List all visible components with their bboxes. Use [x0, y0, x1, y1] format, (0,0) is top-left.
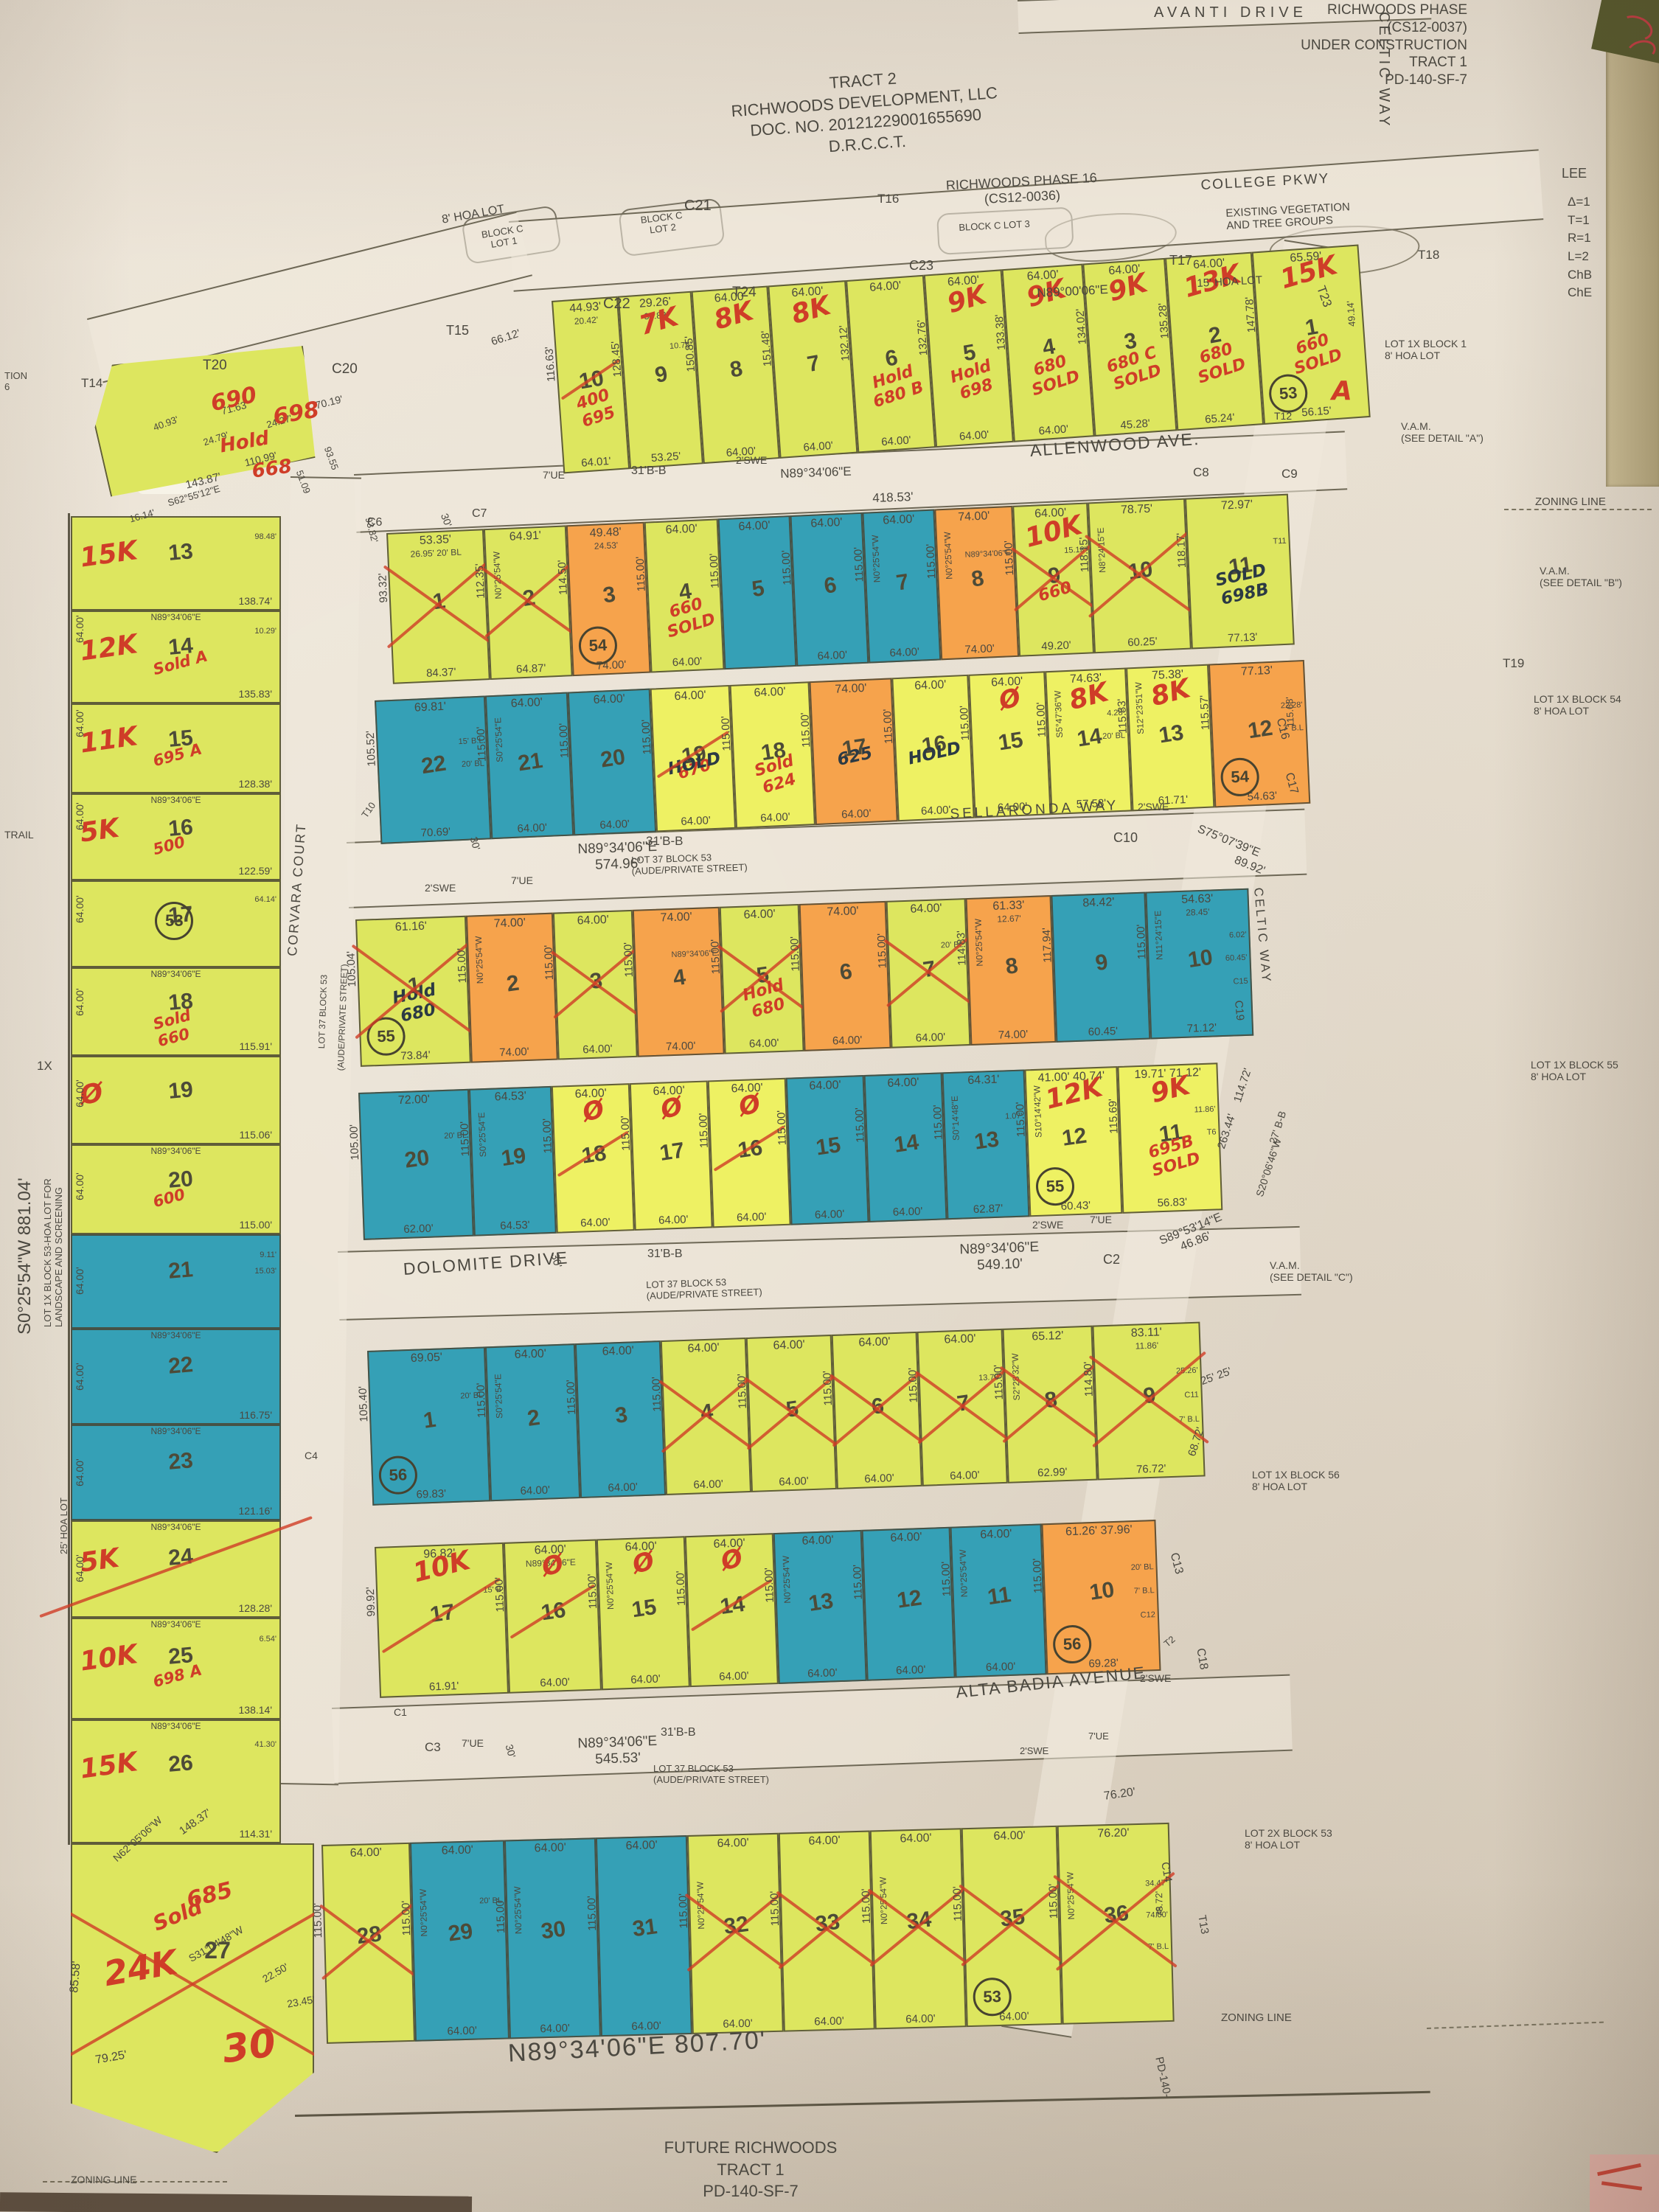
lot: 64.00'10K9115.00'49.20'66015.13'	[1012, 502, 1094, 656]
lot-frontage-dim: 64.00'	[872, 1831, 960, 1847]
lot: 64.00'7115.00'64.00'13.70'	[917, 1329, 1008, 1486]
lot-rear-dim: 64.00'	[797, 647, 867, 663]
plat-label: ZONING LINE	[71, 2174, 136, 2185]
plat-label: T19	[1503, 656, 1524, 671]
plat-label: Δ=1 T=1 R=1 L=2 ChB ChE	[1568, 193, 1592, 302]
lot-bearing: S0°25'54"E	[477, 1112, 489, 1157]
lot-rear-dim: 64.00'	[868, 1662, 954, 1677]
lot: 15K13138.74'98.48'	[71, 516, 281, 611]
lot: 64.00'Ø17115.00'64.00'	[630, 1080, 713, 1231]
lot-frontage-dim: 64.00'	[689, 1836, 777, 1852]
lot: N89°34'06"E22116.75'	[71, 1329, 281, 1425]
lot-frontage-dim: 64.00'	[952, 1526, 1041, 1543]
lot-depth-dim: 115.00'	[1014, 1102, 1028, 1137]
lot-rear-dim: 64.00'	[636, 1212, 712, 1228]
lot-inner-dim: C12	[1140, 1610, 1155, 1620]
lot-frontage-dim: 64.00'	[775, 1533, 861, 1549]
lot-rear-dim: 60.25'	[1095, 633, 1190, 650]
lot-rear-dim: 64.00'	[602, 1672, 689, 1687]
lot-bearing: N89°34'06"E	[72, 1620, 279, 1630]
lot: 64.00'8K7151.48'64.00'	[768, 280, 858, 459]
plat-label: C22	[603, 296, 630, 313]
lot: N89°34'06"E5K16500122.59'	[71, 793, 281, 880]
lot-rear-dim: 45.28'	[1095, 415, 1175, 434]
lot-rear-dim: 84.37'	[394, 664, 489, 681]
lot-rear-dim: 64.00'	[574, 816, 655, 832]
lot: 78.75'10118.15'N8°24'15"E60.25'	[1088, 498, 1192, 654]
lot-depth-dim: 138.74'	[239, 595, 273, 607]
lot-depth-dim: 115.00'	[619, 1116, 633, 1151]
lot-depth-dim: 115.00'	[881, 709, 895, 744]
lot-frontage-dim: 69.05'	[369, 1349, 484, 1367]
plat-label: N89°34'06"E	[780, 465, 852, 481]
west-edge-dim: 64.00'	[74, 988, 86, 1016]
lot: 64.00'3115.00'64.00'	[575, 1340, 666, 1498]
lot: 64.00'6115.00'64.00'	[790, 512, 869, 667]
lot-rear-dim: 64.00'	[752, 1474, 835, 1489]
pink-sticky-edge	[1590, 2154, 1659, 2212]
lot-depth-dim: 116.63'	[543, 346, 558, 382]
lot-frontage-dim: 64.31'	[944, 1073, 1024, 1089]
plat-label: T17	[1169, 253, 1192, 268]
lot-depth-dim: 115.00'	[1002, 540, 1016, 575]
lot-depth-dim: 150.85'	[683, 335, 698, 372]
lot-depth-dim: 115.00'	[585, 1896, 599, 1931]
lot-rear-dim: 64.00'	[691, 1669, 777, 1684]
lot-rear-dim: 64.00'	[838, 1471, 921, 1486]
lot-depth-dim: 115.00'	[455, 947, 469, 983]
lot-depth-dim: 115.00'	[565, 1380, 579, 1415]
plat-label: C9	[1281, 467, 1298, 481]
lot: 64.00'Ø15115.00'64.00'	[968, 671, 1051, 818]
plat-label: T20	[203, 358, 227, 374]
lot-bearing: N89°34'06"E	[72, 796, 279, 806]
lot-depth-dim: 115.00'	[634, 556, 648, 591]
lot-depth-dim: 115.00'	[853, 1107, 867, 1143]
plat-label: T16	[877, 192, 899, 206]
lot-rear-dim: 64.00'	[870, 1204, 946, 1220]
lot-frontage-dim: 64.00'	[894, 678, 968, 695]
lot-depth-dim: 115.00'	[542, 945, 556, 980]
plat-label: C19	[1232, 1000, 1247, 1021]
lot: 11K15695 A128.38'	[71, 703, 281, 793]
lot: 64.00'4115.00'64.00'	[661, 1338, 751, 1495]
lot-bearing: S5°47'36"W	[1053, 690, 1065, 738]
lot: 64.00'12115.00'64.00'	[862, 1527, 956, 1681]
handwritten-red-note: A	[1332, 376, 1352, 406]
lot-number: 22	[167, 1352, 194, 1380]
lot: 64.00'30115.00'N0°25'54"W64.00'	[504, 1837, 601, 2039]
lot-rear-dim: 64.00'	[816, 806, 897, 822]
lot-frontage-dim: 54.63'	[1147, 891, 1248, 908]
lot-bearing: N0°25'54"W	[513, 1886, 524, 1934]
lot-depth-dim: 114.31'	[240, 1828, 272, 1840]
lot-rear-dim: 64.00'	[492, 820, 572, 836]
lot: 74.00'17115.00'64.00'625	[809, 678, 897, 825]
lot-frontage-dim: 61.26' 37.96'	[1043, 1523, 1155, 1540]
lot: 175364.14'	[71, 880, 281, 967]
lot-depth-dim: 118.17'	[1175, 532, 1189, 568]
lot: 64.00'14115.00'64.00'	[864, 1072, 947, 1222]
lot-depth-dim: 133.38'	[993, 313, 1009, 350]
lot: N89°34'06"E15K26114.31'41.30'	[71, 1719, 281, 1843]
lot-frontage-dim: 74.00'	[634, 910, 719, 926]
lot: 74.00'6115.00'64.00'	[799, 901, 891, 1051]
lot-inner-dim: 22.28'	[1281, 701, 1303, 712]
lot: 64.91'2112.35'N0°25'54"W64.87'	[484, 525, 573, 680]
lot-bearing: N0°25'54"W	[605, 1562, 616, 1610]
lot-frontage-dim: 64.00'	[833, 1335, 917, 1351]
table-edge	[0, 2192, 472, 2212]
block-number-circle: 53	[155, 902, 193, 940]
plat-label: N89°34'06"E 549.10'	[929, 1238, 1070, 1275]
lot-frontage-dim: 61.16'	[357, 919, 465, 936]
lot-frontage-dim: 64.00'	[662, 1340, 745, 1357]
lot-depth-dim: 115.00'	[400, 1901, 413, 1936]
lot: 64.00'29115.00'N0°25'54"W64.00'20' BL	[410, 1840, 509, 2042]
plat-label: LOT 37 BLOCK 53 (AUDE/PRIVATE STREET)	[631, 852, 748, 877]
lot-rear-dim: 74.00'	[639, 1038, 723, 1054]
plat-label: 7'UE	[543, 469, 565, 481]
lot-depth-dim: 115.57'	[1198, 695, 1212, 730]
lot-rear-dim: 74.00'	[972, 1027, 1055, 1043]
lot-rear-dim: 64.00'	[559, 1042, 636, 1057]
lot-bearing: S0°25'54"E	[493, 1374, 505, 1419]
lot-rear-dim: 60.45'	[1057, 1023, 1150, 1040]
lot-frontage-dim: 64.00'	[721, 907, 799, 923]
lot: 64.00'18115.00'64.00'Sold 624	[730, 681, 815, 829]
west-edge-dim: 64.00'	[74, 1172, 86, 1200]
lot-rear-dim: 64.00'	[869, 644, 939, 660]
plat-label: 7'UE	[1088, 1731, 1109, 1742]
lot-frontage-dim: 64.00'	[487, 1346, 574, 1363]
lot-rear-dim: 64.00'	[779, 1666, 866, 1681]
lot: 64.00'13115.00'N0°25'54"W64.00'	[773, 1530, 867, 1684]
lot-rear-dim: 49.20'	[1020, 638, 1093, 654]
lot: 219.11'15.03'	[71, 1234, 281, 1329]
lot-frontage-dim: 64.00'	[487, 695, 567, 712]
lot-frontage-dim: 74.00'	[811, 681, 891, 698]
lot-rear-dim: 64.00'	[416, 2023, 507, 2038]
plat-label: LOT 1X BLOCK 56 8' HOA LOT	[1252, 1469, 1340, 1492]
lot-inner-dim: 9.11'	[260, 1251, 276, 1260]
plat-label: 25' HOA LOT	[59, 1498, 70, 1554]
lot-depth-dim: 132.12'	[837, 324, 852, 361]
lot-rear-dim: 64.00'	[876, 2011, 964, 2026]
lot-rear-dim: 64.01'	[564, 453, 628, 470]
plat-label: 31'B-B	[647, 1248, 683, 1261]
plat-label: 85.58'	[68, 1961, 84, 1994]
plat-label: 31'B-B	[631, 465, 667, 478]
lot-depth-dim: 134.02'	[1074, 308, 1089, 345]
lot-depth-dim: 115.00'	[1031, 1558, 1045, 1593]
lot-number: 20	[362, 1140, 472, 1180]
plat-label: V.A.M. (SEE DETAIL "B")	[1540, 565, 1622, 588]
lot: 61.26' 37.96'10115.00'69.28'5620' BL7' B…	[1041, 1520, 1161, 1674]
lot: Ø19115.06'	[71, 1056, 281, 1144]
lot: 96.82'10K1799.92'61.91'15' B	[375, 1543, 509, 1698]
lot-inner-dim: 11.86'	[1194, 1105, 1215, 1115]
price-annotation: 11K	[78, 721, 139, 759]
plat-label: LOT 1X BLOCK 54 8' HOA LOT	[1534, 693, 1621, 717]
lot-depth-dim: 115.00'	[780, 549, 794, 585]
lot-rear-dim: 74.00'	[942, 641, 1018, 658]
lot-depth-dim: 115.00'	[458, 1121, 472, 1156]
lot: 64.00'3115.00'64.00'	[553, 910, 638, 1060]
plat-label: 2'SWE	[425, 882, 456, 894]
lot: 64.00'34115.00'N0°25'54"W64.00'	[870, 1828, 967, 2029]
plat-label: 2'SWE	[1140, 1672, 1171, 1684]
plat-label: TRAIL	[4, 829, 34, 841]
lot-rear-dim: 53.25'	[630, 448, 702, 466]
lot-number: 23	[167, 1448, 194, 1475]
lot-bearing: N0°25'54"W	[474, 936, 486, 984]
west-edge-dim: 64.00'	[74, 1363, 86, 1391]
lot-number: 19	[167, 1077, 194, 1105]
book-edge-strip	[1606, 0, 1659, 487]
lot-rear-dim: 64.87'	[491, 661, 571, 677]
lot: 64.00'Ø16115.00'64.00'	[708, 1078, 791, 1228]
lot-inner-dim: C11	[1184, 1390, 1199, 1399]
lot-depth-dim: 105.00'	[347, 1124, 361, 1161]
lot: 64.00'21115.00'S0°25'54"E64.00'	[485, 692, 574, 840]
lot-number: 13	[167, 539, 194, 566]
lot-inner-dim: 60.45'	[1225, 953, 1248, 964]
lot-frontage-dim: 72.97'	[1186, 497, 1287, 515]
price-annotation: 15K	[78, 1747, 139, 1785]
lot-inner-dim: 20' BL	[1131, 1562, 1154, 1573]
plat-label: 2'SWE	[736, 454, 767, 466]
plat-label: 2'SWE	[1032, 1219, 1063, 1231]
lot: 76.20'36115.00'N0°25'54"W78.72'34.47'74.…	[1057, 1823, 1175, 2025]
lot-rear-dim: 64.00'	[780, 437, 856, 455]
lot-rear-dim: 64.00'	[657, 813, 734, 829]
west-edge-dim: 64.00'	[74, 1554, 86, 1582]
lot: 61.33'12.67'8114.83'N0°25'54"W74.00'	[965, 895, 1056, 1046]
lot-inner-dim: 6.54'	[259, 1635, 276, 1644]
lot-bearing: N0°25'54"W	[782, 1555, 793, 1603]
lot-depth-dim: 115.00'	[875, 933, 889, 969]
lot-depth-dim: 115.00'	[557, 723, 571, 758]
lot-depth-dim: 115.00'	[958, 705, 972, 740]
lot-depth-dim: 132.76'	[915, 319, 931, 356]
lot: 64.00'16115.00'64.00'HOLD	[891, 675, 974, 821]
lot-depth-dim: 115.00'	[494, 1898, 507, 1933]
handwritten-red-note: 600	[151, 1186, 187, 1211]
lot-depth-dim: 135.28'	[1156, 302, 1172, 339]
lot-frontage-dim: 64.00'	[787, 1078, 863, 1094]
plat-label: C21	[684, 198, 712, 215]
plat-label: T18	[1418, 248, 1439, 262]
lot-depth-dim: 115.00'	[788, 936, 802, 972]
lot-frontage-dim2: 11.86'	[1094, 1340, 1199, 1354]
lot-frontage-dim: 64.53'	[470, 1089, 551, 1105]
lot-rear-dim: 64.00'	[858, 432, 934, 450]
lot-frontage-dim: 64.00'	[792, 515, 862, 532]
lot-rear-dim: 62.87'	[948, 1201, 1029, 1217]
lot-frontage-dim: 64.00'	[888, 901, 965, 917]
lot-inner-dim: 7' B.L	[1134, 1587, 1155, 1597]
lot-rear-dim: 64.00'	[667, 1477, 750, 1492]
lot-depth-dim: 138.14'	[239, 1704, 273, 1716]
lot: 64.00'2115.00'S0°25'54"E64.00'	[485, 1343, 580, 1501]
lot: 83.11'11.86'9114.80'76.72'25.26'C117' B.…	[1092, 1322, 1205, 1481]
lot-depth-dim: 115.00'	[1047, 1884, 1060, 1919]
plat-label: C1	[394, 1706, 407, 1718]
plat-label: LOT 1X BLOCK 1 8' HOA LOT	[1385, 338, 1467, 361]
lot-inner-dim: 64.14'	[254, 895, 276, 905]
lot-bearing: N0°25'54"W	[419, 1889, 430, 1937]
west-edge-dim: 64.00'	[74, 709, 86, 737]
lot: 64.00'9K5132.76'64.00'Hold 698	[924, 269, 1014, 448]
lot-depth-dim: 151.48'	[759, 330, 775, 366]
lot: 19.71' 71.12'9K11115.69'56.83'695B SOLD1…	[1117, 1062, 1222, 1214]
price-annotation: 15K	[78, 535, 139, 574]
lot-bearing: S10°14'42"W	[1032, 1085, 1044, 1138]
lot-bearing: N89°34'06"E	[72, 1722, 279, 1732]
lot: N89°34'06"E12K14Sold A135.83'10.29'	[71, 611, 281, 703]
lot-depth-dim: 115.00'	[775, 1110, 789, 1145]
lot-depth-dim: 115.00'	[1034, 701, 1048, 737]
lot-number: 9	[1054, 945, 1149, 982]
lot-frontage-dim: 76.20'	[1059, 1826, 1168, 1842]
lot: N89°34'06"E20600115.00'	[71, 1144, 281, 1234]
lot-depth-dim: 135.83'	[239, 688, 273, 700]
lot-depth-dim: 115.00'	[939, 1561, 953, 1596]
plat-label: 7'UE	[1090, 1214, 1112, 1225]
lot-rear-dim: 64.00'	[956, 1659, 1046, 1674]
lot-frontage-dim: 74.00'	[936, 509, 1012, 526]
lot-frontage-dim: 64.00'	[646, 521, 717, 538]
plat-label: V.A.M. (SEE DETAIL "A")	[1401, 420, 1484, 444]
lot: 64.00'5115.00'64.00'Hold 680	[720, 904, 804, 1054]
west-boundary-line	[68, 513, 70, 1845]
lot-rear-dim: 64.00'	[652, 654, 723, 669]
lot-rear-dim: 64.00'	[892, 1030, 970, 1046]
lot-depth-dim: 105.40'	[357, 1386, 371, 1422]
lot: 64.00'7115.00'N0°25'54"W64.00'	[862, 509, 941, 664]
plat-label: LOT 1X BLOCK 53-HOA LOT FOR LANDSCAPE AN…	[43, 1178, 65, 1327]
lot-depth-dim: 115.00'	[240, 1219, 272, 1231]
lot-inner-dim: 15.03'	[254, 1267, 276, 1276]
lot-rear-dim: 71.12'	[1152, 1020, 1253, 1036]
handwritten-red-note: 500	[151, 832, 187, 858]
lot-depth-dim: 115.00'	[540, 1119, 554, 1154]
plat-label: ZONING LINE	[1535, 495, 1606, 508]
plat-label: C4	[305, 1450, 318, 1461]
lot: 74.00'4115.00'74.00'N89°34'06"E	[633, 907, 725, 1057]
lot-depth-dim: 115.06'	[240, 1129, 272, 1141]
lot-inner-dim: T6	[1207, 1128, 1217, 1138]
lot-frontage-dim: 69.81'	[376, 699, 484, 717]
lot: 69.05'1105.40'69.83'5620' BL	[367, 1346, 490, 1505]
lot-frontage-dim: 64.00'	[577, 1343, 660, 1360]
lot-bearing: N89°34'06"E	[72, 1147, 279, 1157]
lot-rear-dim: 64.00'	[1014, 421, 1093, 439]
lot-frontage-dim: 64.00'	[720, 518, 790, 535]
lot-depth-dim: 115.91'	[240, 1040, 272, 1052]
lot: 64.00'Ø18115.00'64.00'	[552, 1083, 635, 1234]
lot-depth-dim: 115.00'	[639, 719, 653, 754]
lot-rear-dim: 64.53'	[475, 1218, 555, 1234]
plat-label: FUTURE RICHWOODS TRACT 1 PD-140-SF-7	[625, 2137, 876, 2202]
lot-depth-dim: 115.00'	[1135, 924, 1149, 959]
lot-rear-dim: 62.99'	[1009, 1464, 1096, 1480]
lot-frontage-dim: 64.00'	[866, 1075, 942, 1091]
lot: 64.00'31115.00'64.00'	[596, 1835, 692, 2037]
plat-label: 1X	[37, 1059, 52, 1074]
plat-label: 418.53'	[872, 490, 914, 505]
lot-rear-dim: 64.00'	[726, 1036, 803, 1051]
lot-depth-dim: 116.75'	[240, 1409, 272, 1421]
lot: 64.00'28115.00'	[321, 1843, 415, 2044]
lot-depth-dim: 115.00'	[475, 726, 489, 762]
lot-depth-dim: 115.00'	[622, 942, 636, 978]
plat-map-photo: 44.93'20.42'10116.63'64.01'400 69529.26'…	[0, 0, 1659, 2212]
lot-number: 26	[167, 1750, 194, 1778]
plat-label: LOT 37 BLOCK 53 (AUDE/PRIVATE STREET)	[653, 1764, 769, 1786]
zoning-line-dash	[1504, 509, 1652, 510]
lot: 64.00'Ø15115.00'N0°25'54"W64.00'	[597, 1536, 690, 1690]
lot: 69.81'22105.52'70.69'15' B.L20' BL	[375, 695, 491, 844]
lot-bearing: N0°25'54"W	[871, 535, 883, 582]
lot-inner-dim: T11	[1273, 537, 1287, 546]
west-edge-dim: 64.00'	[74, 1267, 86, 1295]
lot-depth-dim: 114.50'	[556, 559, 570, 594]
lot-rear-dim: 74.00'	[472, 1044, 557, 1060]
lot: 64.00'6132.12'64.00'Hold 680 B	[846, 275, 936, 453]
lot-rear-dim: 62.00'	[364, 1220, 473, 1237]
plat-label: C8	[1193, 465, 1209, 480]
plat-label: T14	[81, 376, 102, 391]
lot: 53.35'26.95' 20' BL193.32'84.37'	[386, 529, 490, 684]
lot-bearing: S0°25'54"E	[493, 717, 505, 762]
plat-label: LEE	[1562, 166, 1587, 181]
lot-frontage-dim: 64.00'	[919, 1332, 1002, 1348]
plat-label: T24	[732, 285, 757, 301]
lot: 64.00'8K8150.85'64.00'	[692, 285, 780, 464]
price-annotation: 12K	[78, 629, 139, 667]
lot-frontage-dim: 78.75'	[1089, 501, 1184, 519]
lot: 75.38'8K13115.83'S12°23'51"W61.71'	[1126, 664, 1214, 812]
lot-number: 21	[167, 1257, 194, 1284]
lot-depth-dim: 117.94'	[1040, 928, 1054, 963]
lot-frontage-dim: 65.12'	[1004, 1329, 1092, 1345]
plat-label: C2	[1103, 1252, 1120, 1267]
lot: 74.63'8K14115.00'S5°47'36"W57.58'4.28'20…	[1045, 668, 1132, 815]
lot-frontage-dim: 64.00'	[554, 913, 632, 929]
lot-depth-dim: 114.80'	[1082, 1361, 1096, 1397]
lot-bearing: N89°34'06"E	[72, 613, 279, 623]
lot-depth-dim: 115.00'	[674, 1570, 688, 1605]
lot-frontage-dim: 64.00'	[864, 512, 934, 529]
plat-label: C23	[909, 258, 933, 274]
plat-label: LOT 37 BLOCK 53 (AUDE/PRIVATE STREET)	[646, 1276, 762, 1302]
lot-depth-dim: 121.16'	[239, 1505, 273, 1517]
lot-bearing: N89°34'06"E	[72, 1331, 279, 1341]
lot: 64.00'32115.00'N0°25'54"W64.00'	[687, 1833, 784, 2034]
lot-frontage-dim: 64.00'	[597, 1838, 686, 1854]
lot-rear-dim: 64.00'	[510, 2021, 599, 2036]
lot-depth-dim: 115.00'	[709, 939, 723, 974]
lot-depth-dim: 115.00'	[924, 543, 938, 579]
lot-depth-dim: 115.00'	[697, 1113, 711, 1148]
plat-label: 2'SWE	[1020, 1746, 1048, 1757]
lot-frontage-dim: 49.48'	[568, 525, 644, 542]
lot-depth-dim: 115.69'	[1107, 1099, 1121, 1134]
west-edge-dim: 64.00'	[74, 615, 86, 643]
lot-depth-dim: 115.00'	[799, 712, 813, 747]
